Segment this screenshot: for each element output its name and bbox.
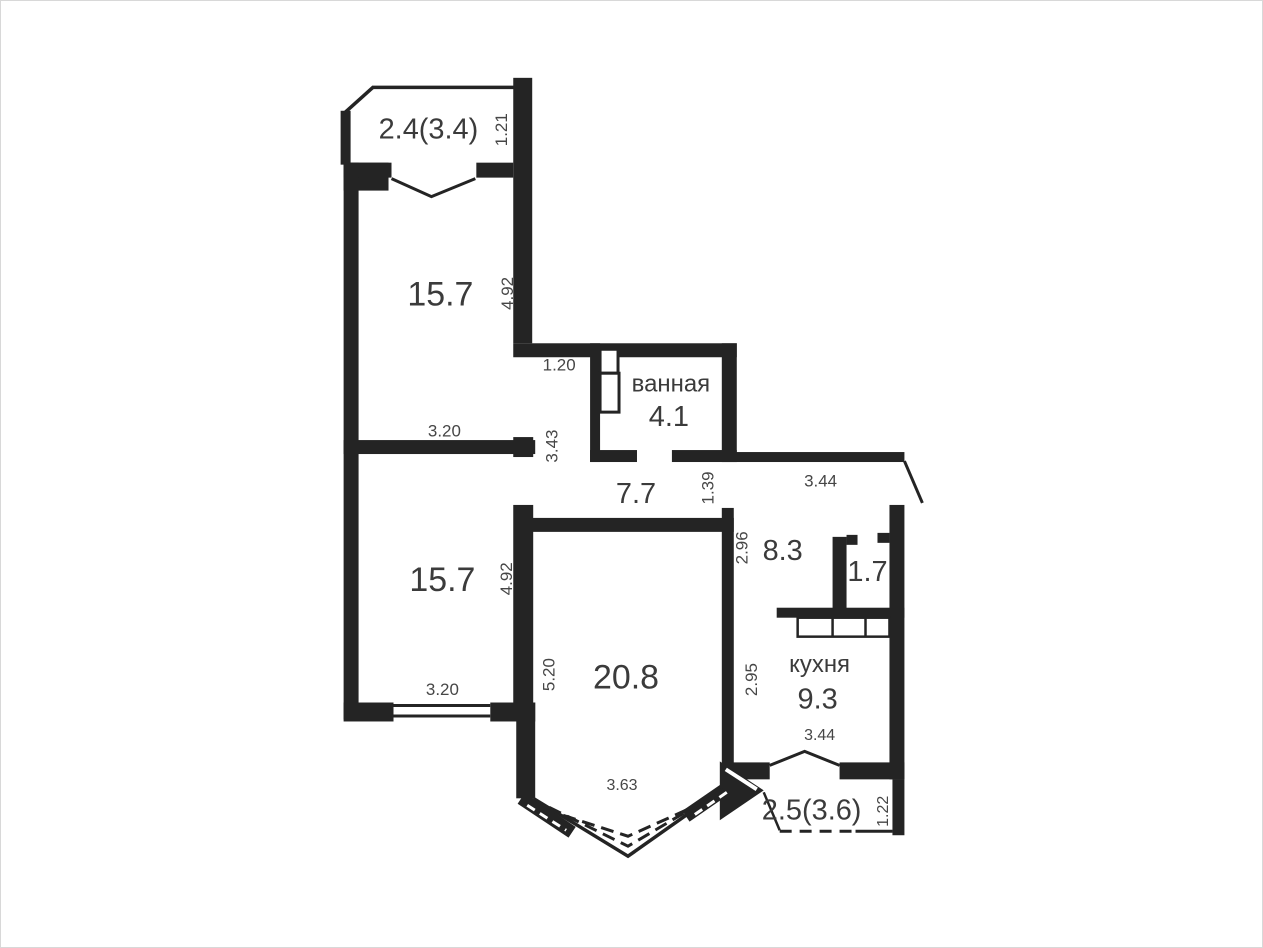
kitchen-balcony-door [770, 751, 840, 765]
bay-window [521, 785, 731, 856]
room-bottom-height-dim: 4.92 [497, 562, 516, 595]
floor-plan-svg: 2.4(3.4) 1.21 15.7 4.92 3.20 1.20 3.43 в… [1, 1, 1262, 947]
entry-top-width-dim: 3.44 [804, 471, 837, 490]
niche-width-dim: 1.20 [543, 356, 576, 375]
labels: 2.4(3.4) 1.21 15.7 4.92 3.20 1.20 3.43 в… [379, 113, 892, 827]
room-bottom-area-label: 15.7 [409, 561, 475, 599]
room-bottom-window [394, 706, 491, 716]
living-bay-width-dim: 3.63 [606, 777, 637, 794]
bathroom-area-label: 4.1 [649, 401, 689, 433]
entry-door-swing [904, 461, 922, 503]
balcony-bottom-area-label: 2.5(3.6) [762, 794, 862, 826]
room-top-height-dim: 4.92 [498, 277, 517, 310]
balcony-top-area-label: 2.4(3.4) [379, 114, 479, 146]
entry-height-dim: 2.96 [732, 531, 751, 564]
hall-width-dim: 1.39 [698, 471, 717, 504]
closet-area-label: 1.7 [847, 556, 887, 588]
bathroom-name-label: ванная [632, 371, 710, 398]
balcony-top-door [392, 179, 476, 197]
room-top-area-label: 15.7 [407, 275, 473, 313]
balcony-bottom-depth-dim: 1.22 [875, 796, 892, 827]
living-height-dim: 5.20 [540, 658, 559, 691]
room-top-width-dim: 3.20 [428, 422, 461, 441]
living-area-label: 20.8 [593, 659, 659, 697]
kitchen-width-dim: 3.44 [804, 727, 835, 744]
niche-height-dim: 3.43 [543, 430, 562, 463]
floorplan-image: 2.4(3.4) 1.21 15.7 4.92 3.20 1.20 3.43 в… [0, 0, 1263, 948]
room-bottom-width-dim: 3.20 [426, 680, 459, 699]
kitchen-name-label: кухня [789, 651, 850, 678]
hall-area-label: 7.7 [616, 478, 656, 510]
balcony-top-depth-dim: 1.21 [492, 113, 511, 146]
kitchen-height-dim: 2.95 [742, 663, 761, 696]
kitchen-cabinets [798, 618, 890, 637]
kitchen-area-label: 9.3 [797, 684, 837, 716]
entry-area-label: 8.3 [763, 535, 803, 567]
vent-shaft [600, 349, 619, 412]
